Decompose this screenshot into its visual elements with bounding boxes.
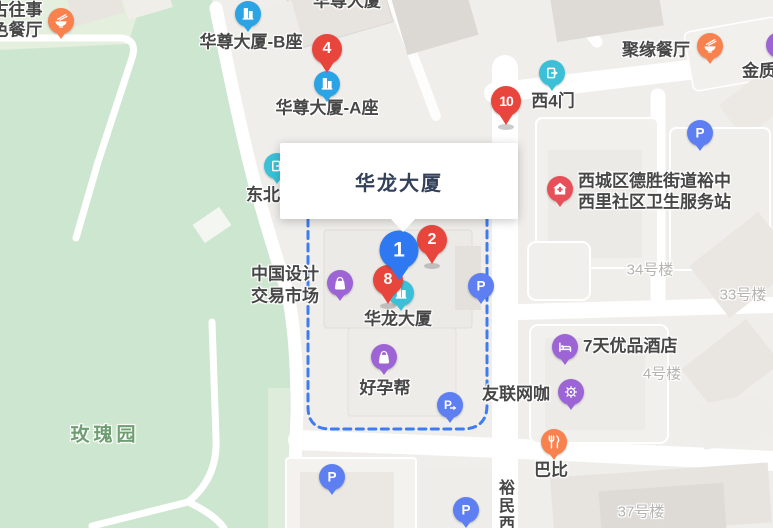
map-pin-4[interactable]: 4 <box>312 34 342 64</box>
map-pin-2[interactable]: 2 <box>417 225 447 255</box>
map-canvas[interactable]: 古往事色餐厅华尊大厦华尊大厦-B座华尊大厦-A座聚缘餐厅金质西4门西城区德胜街道… <box>0 0 773 528</box>
info-popup[interactable]: 华龙大厦 <box>280 143 518 219</box>
popup-title: 华龙大厦 <box>280 143 518 219</box>
pins-layer: 410281 <box>0 0 773 528</box>
popup-arrow <box>390 218 416 232</box>
map-pin-10[interactable]: 10 <box>491 86 521 116</box>
map-pin-1[interactable]: 1 <box>380 231 419 270</box>
